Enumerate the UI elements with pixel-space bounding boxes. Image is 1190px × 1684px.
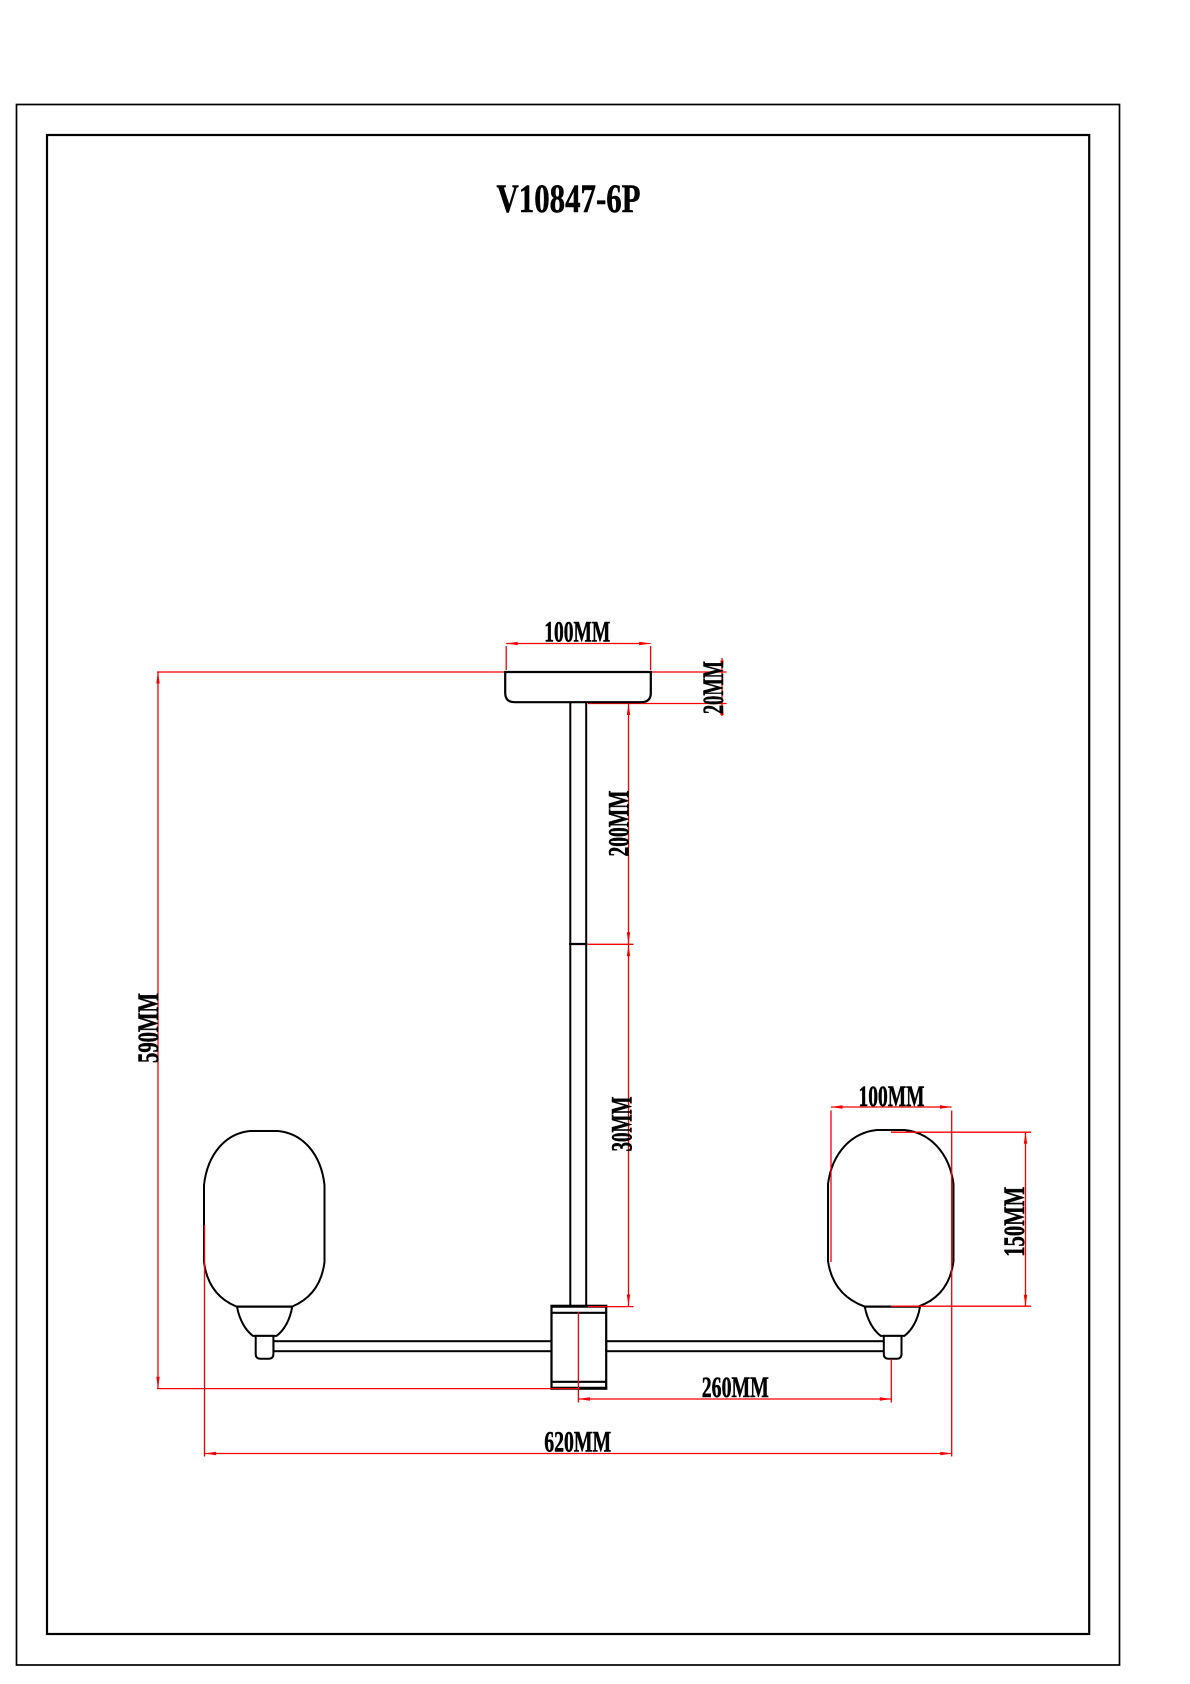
svg-text:20MM: 20MM [698, 661, 730, 714]
svg-text:200MM: 200MM [604, 791, 636, 857]
svg-text:260MM: 260MM [702, 1372, 769, 1404]
svg-text:100MM: 100MM [859, 1081, 925, 1113]
svg-text:30MM: 30MM [607, 1097, 639, 1152]
svg-text:V10847-6P: V10847-6P [497, 176, 641, 221]
svg-text:590MM: 590MM [133, 993, 165, 1063]
svg-text:100MM: 100MM [544, 617, 610, 649]
svg-text:620MM: 620MM [544, 1427, 611, 1459]
svg-text:150MM: 150MM [999, 1187, 1031, 1257]
